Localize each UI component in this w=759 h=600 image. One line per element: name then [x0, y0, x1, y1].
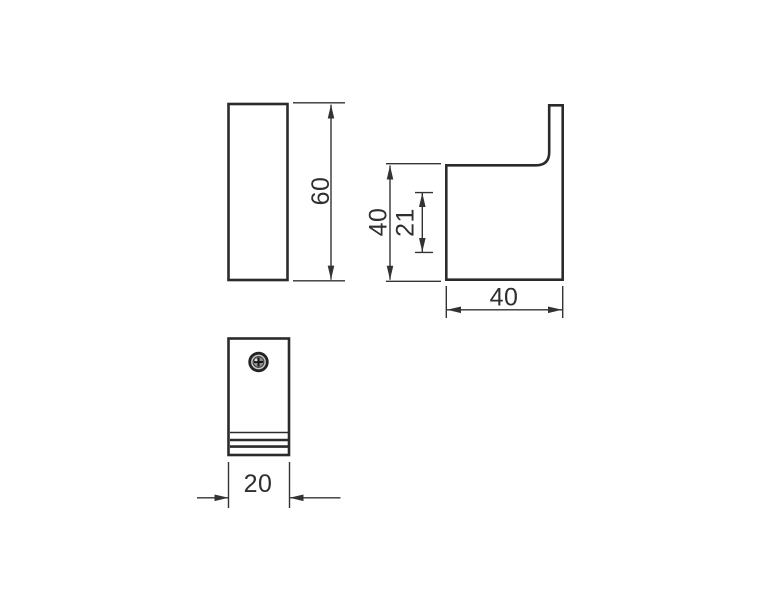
dimension-label-bottom-width: 20: [244, 470, 273, 498]
front-view-outline: [229, 104, 288, 280]
screw-head-icon: [250, 353, 268, 371]
front-view: 60: [229, 103, 346, 281]
bottom-view: 20: [197, 339, 341, 509]
dimension-label-side-depth: 40: [490, 284, 519, 312]
screw-highlight: [255, 359, 258, 362]
dimension-label-side-inner: 21: [392, 208, 420, 237]
side-view: 40 21 40: [365, 105, 563, 318]
hook-technical-drawing: 60 40 21 40: [0, 0, 759, 600]
dimension-label-side-height: 40: [365, 208, 393, 237]
drawing-canvas: 60 40 21 40: [0, 0, 759, 600]
side-view-profile: [446, 105, 562, 279]
dimension-label-front-height: 60: [307, 177, 335, 206]
